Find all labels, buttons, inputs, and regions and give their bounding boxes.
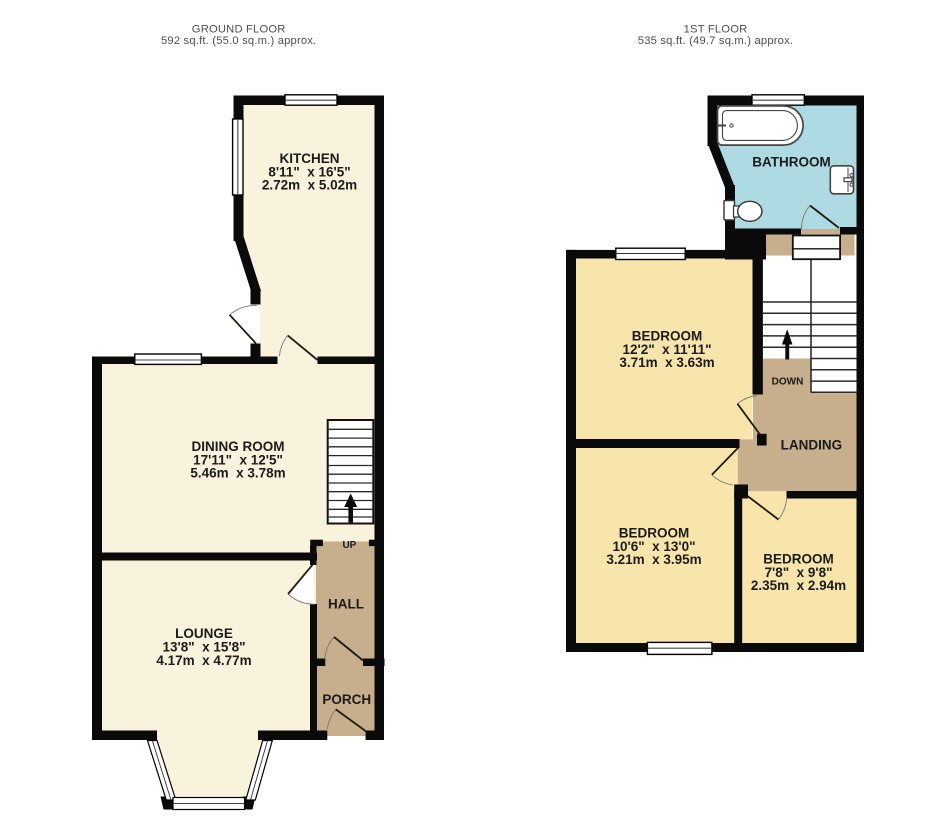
svg-text:DOWN: DOWN (772, 377, 804, 388)
svg-text:BATHROOM: BATHROOM (752, 155, 831, 170)
svg-text:535 sq.ft. (49.7 sq.m.) approx: 535 sq.ft. (49.7 sq.m.) approx. (638, 35, 793, 47)
svg-text:LANDING: LANDING (781, 438, 843, 453)
svg-text:592 sq.ft. (55.0 sq.m.) approx: 592 sq.ft. (55.0 sq.m.) approx. (161, 35, 316, 47)
svg-text:GROUND FLOOR: GROUND FLOOR (192, 24, 286, 36)
svg-text:1ST FLOOR: 1ST FLOOR (684, 24, 748, 36)
svg-text:3.71m x 3.63m: 3.71m x 3.63m (619, 355, 714, 370)
svg-text:2.35m x 2.94m: 2.35m x 2.94m (751, 578, 846, 593)
svg-text:4.17m x 4.77m: 4.17m x 4.77m (156, 653, 251, 668)
svg-text:HALL: HALL (328, 597, 364, 612)
svg-text:2.72m x 5.02m: 2.72m x 5.02m (262, 178, 357, 193)
svg-text:UP: UP (342, 540, 356, 551)
svg-text:5.46m x 3.78m: 5.46m x 3.78m (190, 466, 285, 481)
svg-text:3.21m x 3.95m: 3.21m x 3.95m (606, 552, 701, 567)
svg-text:PORCH: PORCH (322, 692, 371, 707)
